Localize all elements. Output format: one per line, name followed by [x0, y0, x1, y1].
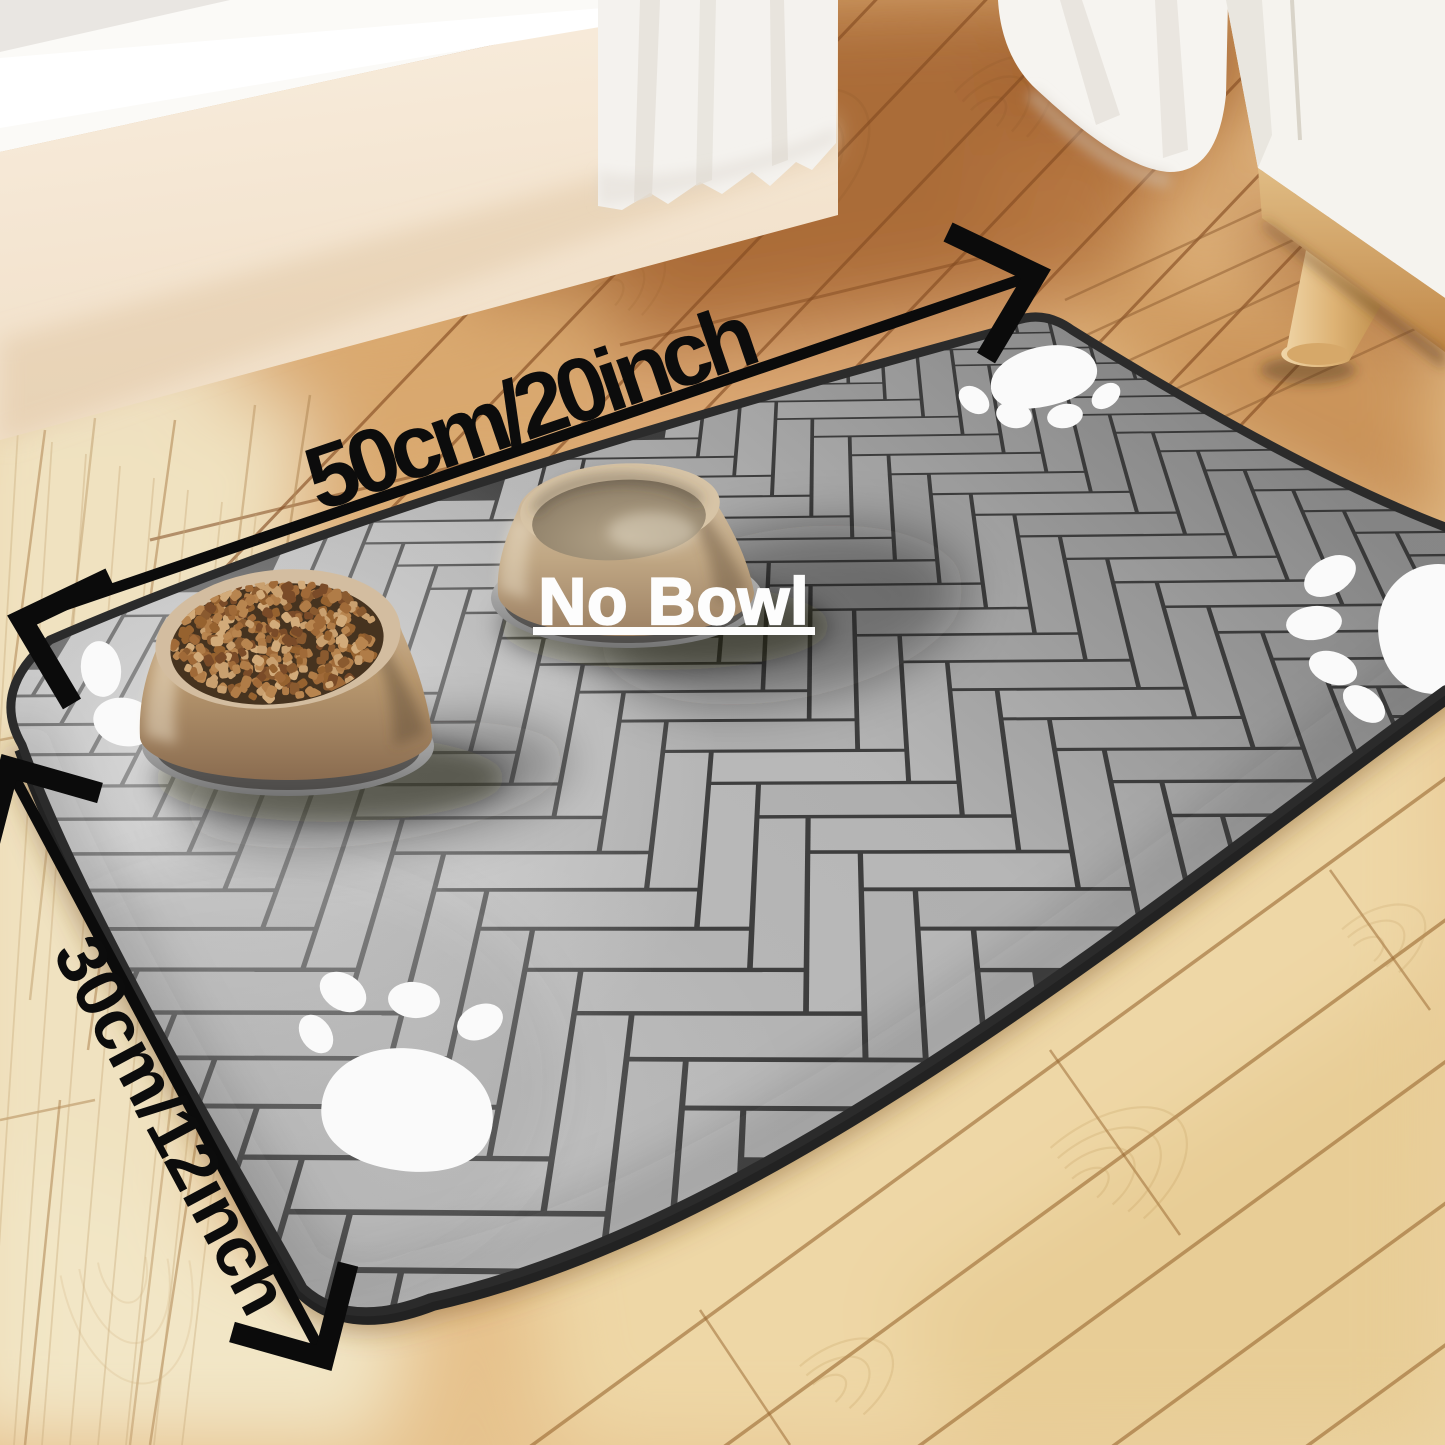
svg-text:No Bowl: No Bowl — [539, 564, 810, 638]
